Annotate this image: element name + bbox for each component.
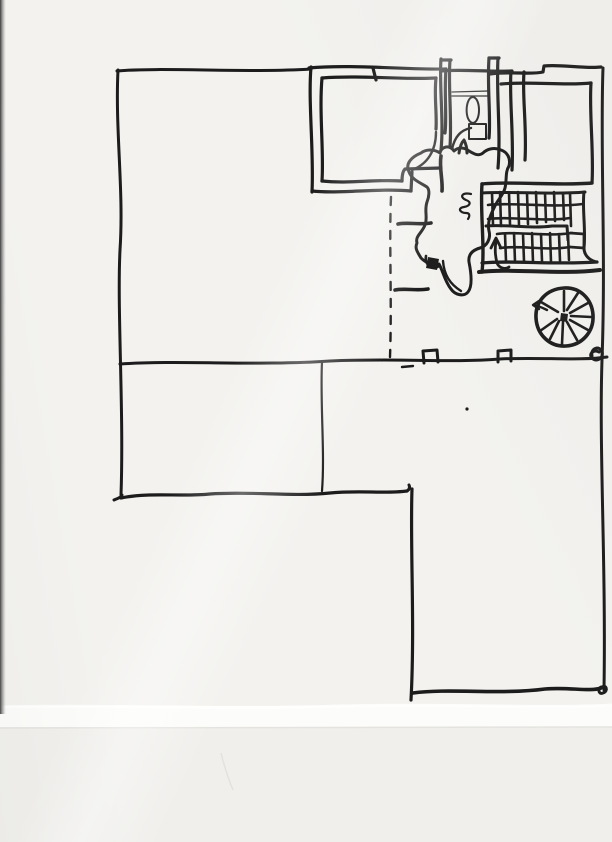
scan-edge-shadow xyxy=(0,0,6,714)
paper-bottom-edge xyxy=(0,705,612,707)
top-wall-left xyxy=(117,69,311,71)
wall-stub-upper xyxy=(398,223,431,224)
spiral-hub xyxy=(560,313,568,322)
second-sheet-edge xyxy=(0,727,612,728)
left-wall-lower xyxy=(411,489,413,700)
wall-stub-lower xyxy=(395,289,428,290)
door-blotch xyxy=(426,257,439,270)
paper-background xyxy=(0,0,612,842)
dot-speck xyxy=(465,407,468,410)
floor-plan-drawing xyxy=(0,0,612,842)
scanned-paper-page xyxy=(0,0,612,842)
